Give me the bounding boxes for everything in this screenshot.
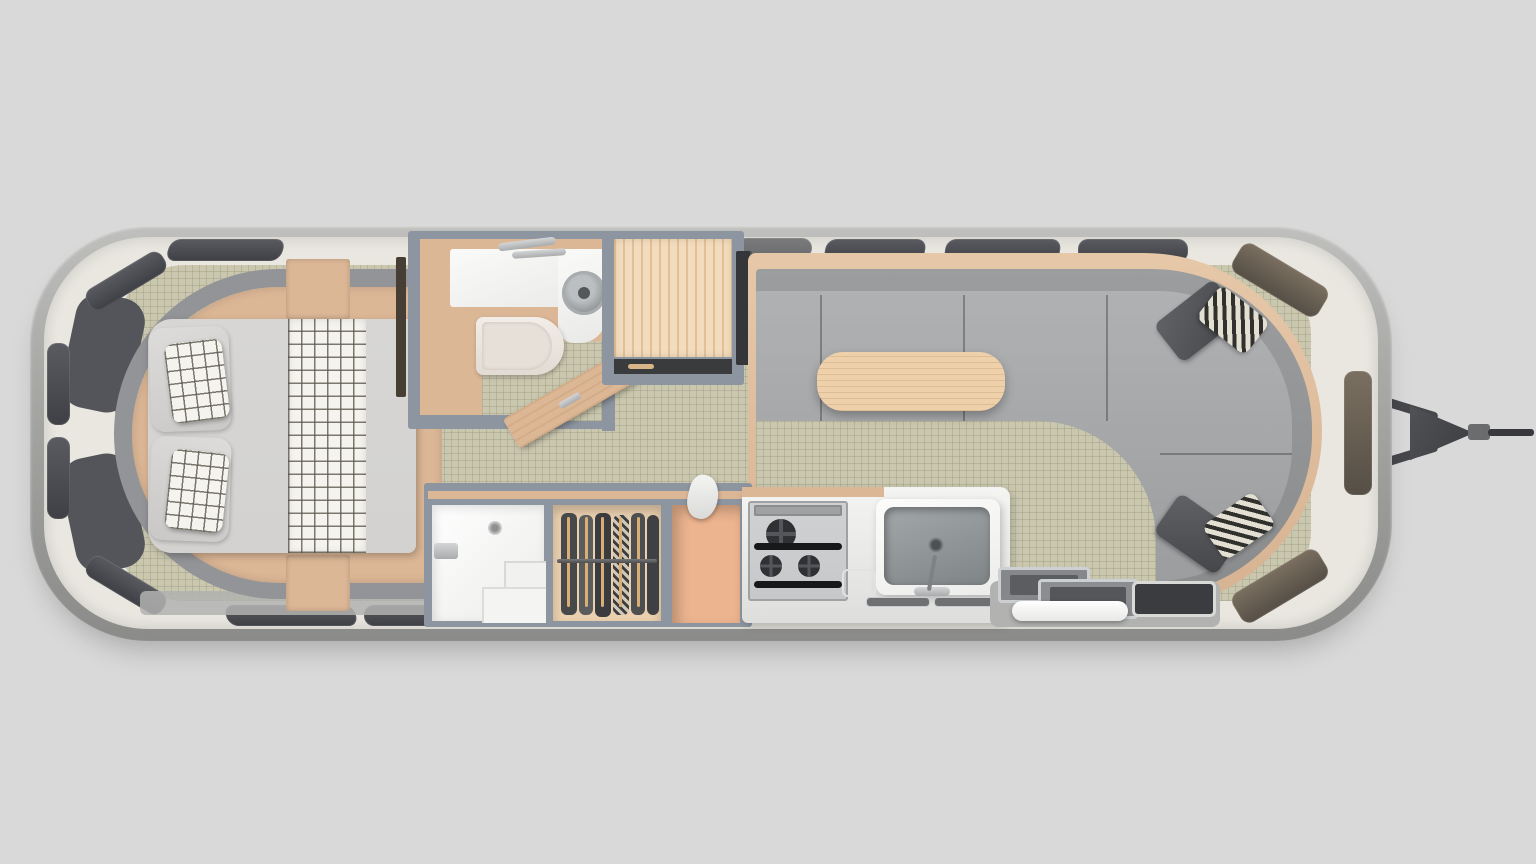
sofa-seam-3 [1106, 295, 1108, 421]
toilet-seat [482, 322, 552, 370]
under-counter-vent-2 [934, 597, 998, 607]
kitchen-faucet-handle [914, 587, 950, 596]
floor-plan-canvas [0, 0, 1536, 864]
range-vent [754, 505, 842, 516]
shower-fixture [434, 543, 458, 559]
sofa-seam-4 [1160, 453, 1292, 455]
cabinet-wood-top [614, 239, 732, 357]
window-front-middle [1344, 371, 1372, 495]
range-grate-1 [754, 543, 842, 550]
window-rear-middle-1 [47, 343, 70, 425]
entry-step [1012, 601, 1128, 621]
bathroom-sink-drain [578, 287, 590, 299]
bedside-cabinet-bottom [286, 555, 350, 611]
range-burner-small-right [798, 555, 820, 577]
lounge-table [817, 352, 1005, 411]
closet-clothes-6 [647, 515, 659, 615]
under-counter-vent-1 [866, 597, 930, 607]
bed-accent-pillow-top [163, 338, 230, 424]
kitchen-sink-drain [928, 537, 944, 553]
trailer-shell [30, 225, 1392, 641]
bed-plaid-runner [288, 319, 366, 553]
sofa-seam-1 [820, 295, 822, 421]
pantry-cubby [672, 505, 740, 623]
bedroom-tv-panel [396, 257, 406, 397]
window-top-bedroom [165, 239, 286, 261]
bed-accent-pillow-bottom [164, 448, 230, 534]
entry-door-window [1132, 581, 1216, 617]
hitch-tongue-triangle [1410, 402, 1474, 464]
hitch-jack-rod [1488, 429, 1534, 436]
range-burner-small-left [760, 555, 782, 577]
shower-bench-step-2 [482, 587, 546, 623]
closet-rod [557, 559, 657, 563]
bedside-cabinet-top [286, 259, 350, 319]
shower-drain [488, 521, 502, 535]
hitch-coupler [1468, 424, 1490, 440]
cabinet-drawer-handle [628, 364, 654, 369]
window-rear-middle-2 [47, 437, 70, 519]
range-grate-2 [754, 581, 842, 588]
galley-backsplash [742, 487, 884, 497]
counter-cover-plate [842, 569, 876, 597]
